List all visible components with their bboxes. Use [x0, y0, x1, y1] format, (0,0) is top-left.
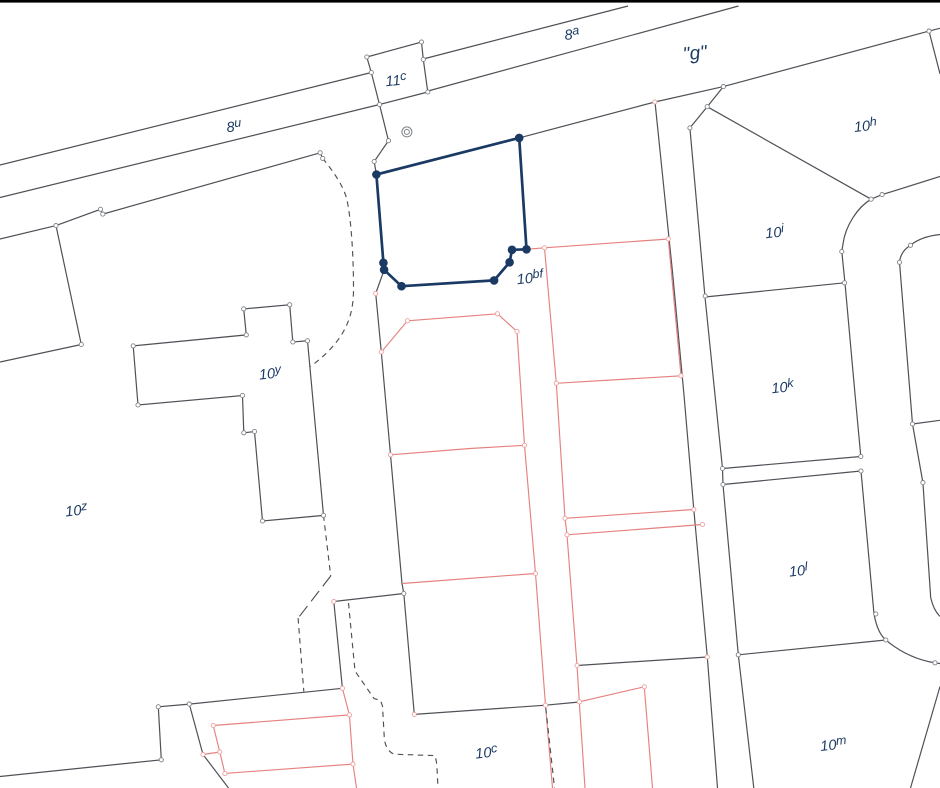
svg-text:"g": "g": [682, 42, 709, 66]
